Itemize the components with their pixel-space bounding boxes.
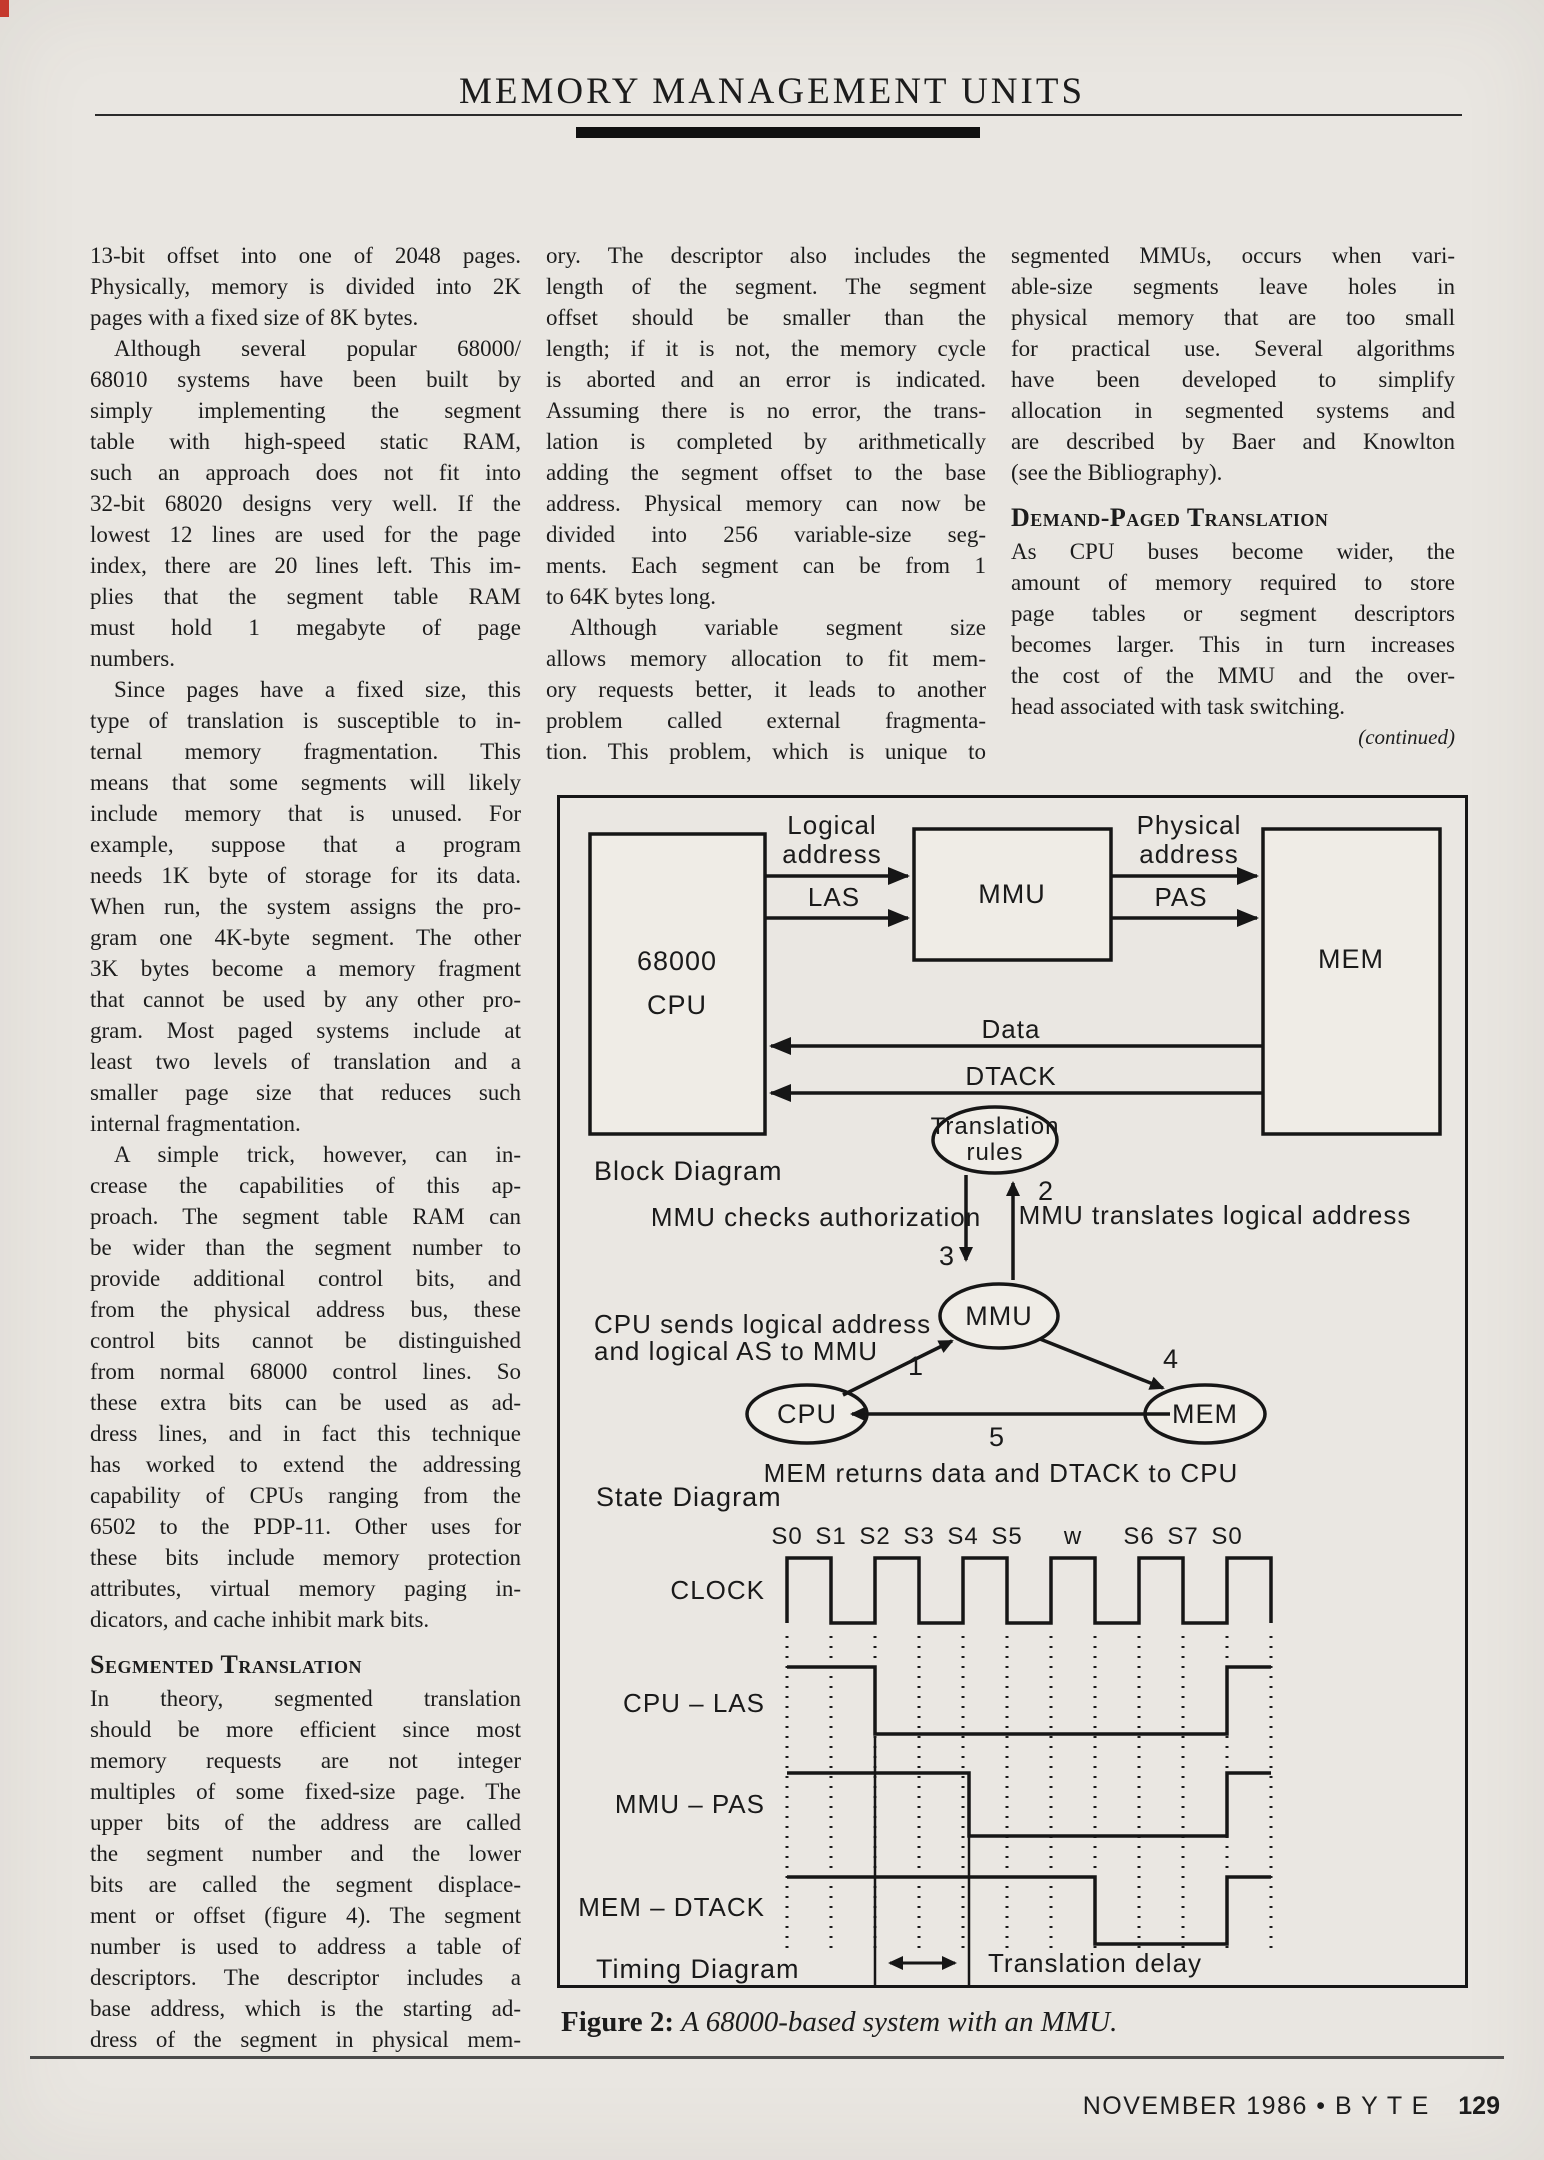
step-4: 4 — [1163, 1344, 1179, 1374]
text-line: 68010 systems have been built by — [90, 364, 521, 395]
text-line: provide additional control bits, and — [90, 1263, 521, 1294]
text-line: head associated with task switching. — [1011, 691, 1455, 722]
footer-rule — [30, 2056, 1504, 2059]
header-bar — [576, 127, 980, 138]
text-line: crease the capabilities of this ap- — [90, 1170, 521, 1201]
state-s5: S5 — [991, 1523, 1022, 1550]
text-line: Assuming there is no error, the trans- — [546, 395, 986, 426]
text-line: is aborted and an error is indicated. — [546, 364, 986, 395]
sends-label-2: and logical AS to MMU — [594, 1336, 878, 1366]
text-line: plies that the segment table RAM — [90, 581, 521, 612]
figure-caption: Figure 2: A 68000-based system with an M… — [561, 2006, 1117, 2039]
tr-node-label-1: Translation — [931, 1113, 1060, 1140]
text-line: simply implementing the segment — [90, 395, 521, 426]
mmu-pas-waveform — [787, 1773, 1271, 1836]
text-line: When run, the system assigns the pro- — [90, 891, 521, 922]
magazine-page: MEMORY MANAGEMENT UNITS 13-bit offset in… — [0, 0, 1544, 2160]
text-line: smaller page size that reduces such — [90, 1077, 521, 1108]
pas-label: PAS — [1154, 882, 1207, 912]
translates-label: MMU translates logical address — [1019, 1200, 1412, 1230]
mmu-pas-label: MMU – PAS — [615, 1789, 765, 1819]
text-line: from normal 68000 control lines. So — [90, 1356, 521, 1387]
mmu-node-label: MMU — [965, 1301, 1032, 1331]
text-line: index, there are 20 lines left. This im- — [90, 550, 521, 581]
text-line: As CPU buses become wider, the — [1011, 536, 1455, 567]
sends-label-1: CPU sends logical address — [594, 1309, 931, 1339]
tr-node-label-2: rules — [966, 1139, 1023, 1166]
text-line: multiples of some fixed-size page. The — [90, 1776, 521, 1807]
translation-delay-label: Translation delay — [988, 1948, 1202, 1978]
physical-label-1: Physical — [1137, 810, 1242, 840]
checks-label: MMU checks authorization — [651, 1202, 981, 1232]
text-line: such an approach does not fit into — [90, 457, 521, 488]
text-line: are described by Baer and Knowlton — [1011, 426, 1455, 457]
text-line: proach. The segment table RAM can — [90, 1201, 521, 1232]
text-line: physical memory that are too small — [1011, 302, 1455, 333]
section-heading: Demand-Paged Translation — [1011, 499, 1455, 536]
state-w: w — [1063, 1523, 1082, 1550]
logical-label-2: address — [782, 839, 882, 869]
state-s2: S2 — [859, 1523, 890, 1550]
text-line: ory requests better, it leads to another — [546, 674, 986, 705]
text-line: gram one 4K-byte segment. The other — [90, 922, 521, 953]
text-line: Although variable segment size — [546, 612, 986, 643]
text-line: to 64K bytes long. — [546, 581, 986, 612]
text-line: dress lines, and in fact this technique — [90, 1418, 521, 1449]
timing-gridlines — [787, 1636, 1271, 1950]
cpu-box-label-1: 68000 — [637, 946, 717, 976]
text-line: the cost of the MMU and the over- — [1011, 660, 1455, 691]
state-s0: S0 — [771, 1523, 802, 1550]
text-line: 32-bit 68020 designs very well. If the — [90, 488, 521, 519]
text-line: memory requests are not integer — [90, 1745, 521, 1776]
text-line: length; if it is not, the memory cycle — [546, 333, 986, 364]
text-line: capability of CPUs ranging from the — [90, 1480, 521, 1511]
text-line: numbers. — [90, 643, 521, 674]
text-line: ory. The descriptor also includes the — [546, 240, 986, 271]
figure-caption-text: A 68000-based system with an MMU. — [681, 2006, 1117, 2038]
text-line: 13-bit offset into one of 2048 pages. — [90, 240, 521, 271]
cpu-las-waveform — [787, 1667, 1271, 1734]
text-column-2: ory. The descriptor also includes thelen… — [546, 240, 986, 767]
state-diagram-label: State Diagram — [596, 1482, 782, 1512]
text-line: Physically, memory is divided into 2K — [90, 271, 521, 302]
text-line: these extra bits can be used as ad- — [90, 1387, 521, 1418]
text-line: divided into 256 variable-size seg- — [546, 519, 986, 550]
text-line: 6502 to the PDP-11. Other uses for — [90, 1511, 521, 1542]
text-line: (see the Bibliography). — [1011, 457, 1455, 488]
text-line: tion. This problem, which is unique to — [546, 736, 986, 767]
state-s3: S3 — [903, 1523, 934, 1550]
text-line: ment or offset (figure 4). The segment — [90, 1900, 521, 1931]
text-line: have been developed to simplify — [1011, 364, 1455, 395]
text-line: example, suppose that a program — [90, 829, 521, 860]
text-line: 3K bytes become a memory fragment — [90, 953, 521, 984]
state-s1: S1 — [815, 1523, 846, 1550]
cpu-las-label: CPU – LAS — [623, 1688, 765, 1718]
clock-label: CLOCK — [670, 1575, 765, 1605]
logical-label-1: Logical — [787, 810, 876, 840]
text-line: upper bits of the address are called — [90, 1807, 521, 1838]
text-line: offset should be smaller than the — [546, 302, 986, 333]
text-line: attributes, virtual memory paging in- — [90, 1573, 521, 1604]
text-line: least two levels of translation and a — [90, 1046, 521, 1077]
footer-issue: NOVEMBER 1986 • B Y T E — [1083, 2092, 1430, 2120]
physical-label-2: address — [1139, 839, 1239, 869]
text-column-3: segmented MMUs, occurs when vari-able-si… — [1011, 240, 1455, 753]
text-line: gram. Most paged systems include at — [90, 1015, 521, 1046]
text-line: dicators, and cache inhibit mark bits. — [90, 1604, 521, 1635]
figure-2: Logical address Physical address LAS PAS… — [557, 795, 1468, 1988]
text-line: number is used to address a table of — [90, 1931, 521, 1962]
page-footer: NOVEMBER 1986 • B Y T E 129 — [1083, 2092, 1500, 2121]
text-line: means that some segments will likely — [90, 767, 521, 798]
text-line: able-size segments leave holes in — [1011, 271, 1455, 302]
text-line: In theory, segmented translation — [90, 1683, 521, 1714]
mem-dtack-waveform — [787, 1877, 1271, 1944]
text-line: length of the segment. The segment — [546, 271, 986, 302]
mem-box — [1263, 829, 1440, 1134]
dtack-label: DTACK — [965, 1061, 1056, 1091]
cpu-box-label-2: CPU — [647, 990, 707, 1020]
text-line: has worked to extend the addressing — [90, 1449, 521, 1480]
text-line: should be more efficient since most — [90, 1714, 521, 1745]
text-line: adding the segment offset to the base — [546, 457, 986, 488]
text-line: pages with a fixed size of 8K bytes. — [90, 302, 521, 333]
section-heading: Segmented Translation — [90, 1646, 521, 1683]
las-label: LAS — [808, 882, 860, 912]
mmu-box-label: MMU — [978, 879, 1045, 909]
text-line: ments. Each segment can be from 1 — [546, 550, 986, 581]
text-line: problem called external fragmenta- — [546, 705, 986, 736]
text-line: A simple trick, however, can in- — [90, 1139, 521, 1170]
text-line: the segment number and the lower — [90, 1838, 521, 1869]
timing-diagram-label: Timing Diagram — [596, 1954, 800, 1984]
cpu-node-label: CPU — [777, 1399, 837, 1429]
text-line: base address, which is the starting ad- — [90, 1993, 521, 2024]
scan-artifact — [0, 0, 9, 17]
text-line: type of translation is susceptible to in… — [90, 705, 521, 736]
text-line: address. Physical memory can now be — [546, 488, 986, 519]
text-column-1: 13-bit offset into one of 2048 pages.Phy… — [90, 240, 521, 2055]
text-line: be wider than the segment number to — [90, 1232, 521, 1263]
text-line: include memory that is unused. For — [90, 798, 521, 829]
step-1: 1 — [908, 1351, 924, 1381]
text-line: table with high-speed static RAM, — [90, 426, 521, 457]
cpu-box — [590, 834, 765, 1134]
state-s0-final: S0 — [1211, 1523, 1242, 1550]
text-line: control bits cannot be distinguished — [90, 1325, 521, 1356]
text-line: descriptors. The descriptor includes a — [90, 1962, 521, 1993]
text-line: allocation in segmented systems and — [1011, 395, 1455, 426]
text-line: for practical use. Several algorithms — [1011, 333, 1455, 364]
mem-node-label: MEM — [1172, 1399, 1238, 1429]
text-line: lation is completed by arithmetically — [546, 426, 986, 457]
mem-box-label: MEM — [1318, 944, 1384, 974]
text-line: internal fragmentation. — [90, 1108, 521, 1139]
step-3: 3 — [939, 1241, 955, 1271]
continued-note: (continued) — [1011, 722, 1455, 753]
text-line: dress of the segment in physical mem- — [90, 2024, 521, 2055]
state-s6: S6 — [1123, 1523, 1154, 1550]
mem-dtack-label: MEM – DTACK — [578, 1892, 765, 1922]
state-s4: S4 — [947, 1523, 978, 1550]
data-label: Data — [982, 1014, 1041, 1044]
step-5: 5 — [989, 1422, 1005, 1452]
block-diagram-label: Block Diagram — [594, 1156, 783, 1186]
text-line: that cannot be used by any other pro- — [90, 984, 521, 1015]
text-line: must hold 1 megabyte of page — [90, 612, 521, 643]
text-line: page tables or segment descriptors — [1011, 598, 1455, 629]
text-line: segmented MMUs, occurs when vari- — [1011, 240, 1455, 271]
page-title: MEMORY MANAGEMENT UNITS — [0, 70, 1544, 113]
text-line: ternal memory fragmentation. This — [90, 736, 521, 767]
clock-waveform — [787, 1558, 1271, 1623]
footer-page-number: 129 — [1458, 2092, 1500, 2120]
figure-caption-label: Figure 2: — [561, 2006, 674, 2038]
text-line: needs 1K byte of storage for its data. — [90, 860, 521, 891]
returns-label: MEM returns data and DTACK to CPU — [764, 1458, 1239, 1488]
timing-state-labels: S0 S1 S2 S3 S4 S5 w S6 S7 S0 — [771, 1523, 1242, 1550]
header-rule — [95, 114, 1462, 116]
text-line: Although several popular 68000/ — [90, 333, 521, 364]
text-line: becomes larger. This in turn increases — [1011, 629, 1455, 660]
text-line: amount of memory required to store — [1011, 567, 1455, 598]
text-line: Since pages have a fixed size, this — [90, 674, 521, 705]
text-line: allows memory allocation to fit mem- — [546, 643, 986, 674]
text-line: lowest 12 lines are used for the page — [90, 519, 521, 550]
arrow-4-mmu-mem — [1040, 1339, 1163, 1388]
text-line: from the physical address bus, these — [90, 1294, 521, 1325]
state-s7: S7 — [1167, 1523, 1198, 1550]
text-line: bits are called the segment displace- — [90, 1869, 521, 1900]
text-line: these bits include memory protection — [90, 1542, 521, 1573]
figure-canvas: Logical address Physical address LAS PAS… — [560, 798, 1465, 1985]
